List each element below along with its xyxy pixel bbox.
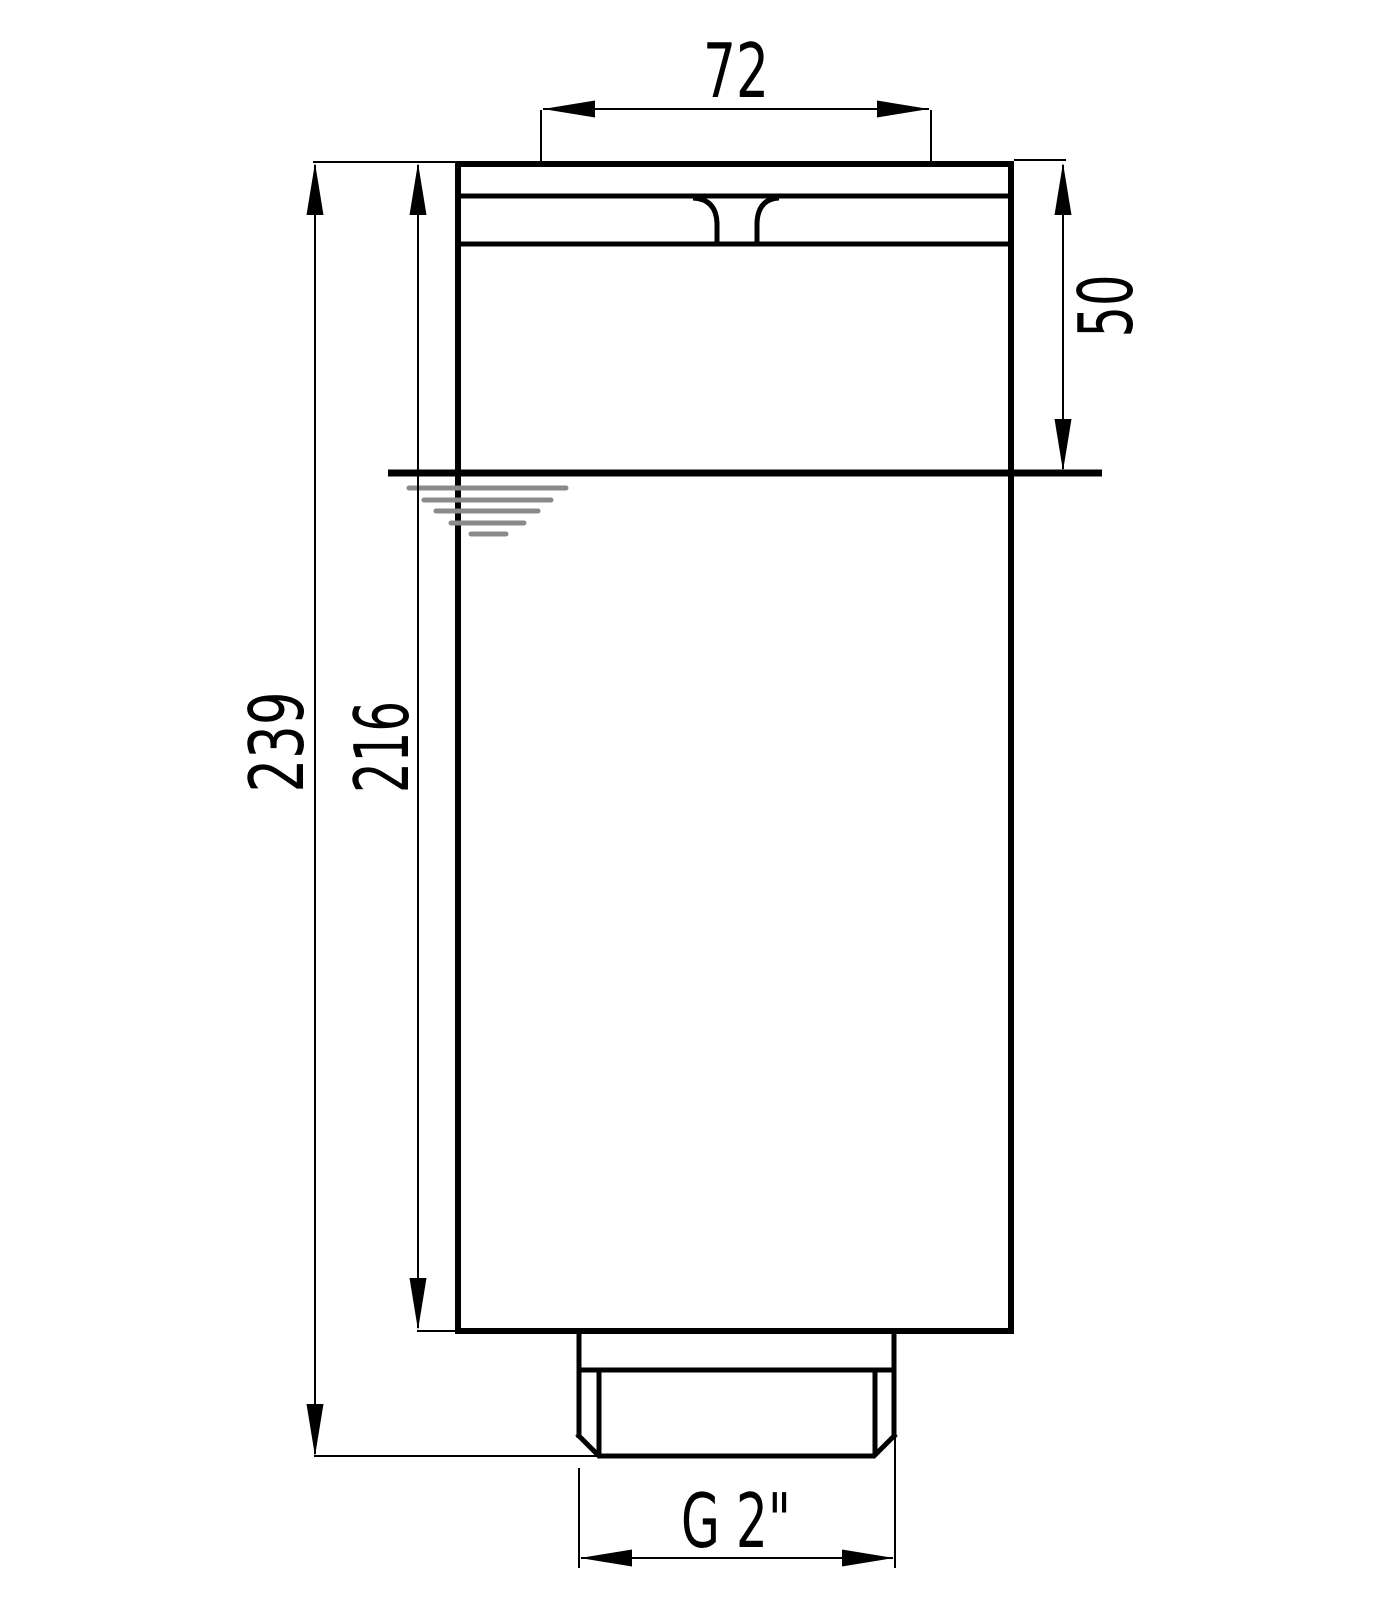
dimG2-arrow-right [842,1550,894,1567]
dim-label-body-height: 216 [338,701,426,793]
dim216-arrow-bottom [410,1278,427,1330]
dim-label-thread-size: G 2" [681,1477,791,1565]
water-level-symbol [409,488,566,534]
dimension-arrows [307,101,1072,1567]
dim-label-top-width: 72 [703,27,769,115]
dim-label-cap-depth: 50 [1062,275,1150,338]
drawing-sheet: 72 239 216 50 G 2" [0,0,1390,1600]
funnel-right-curve [757,198,779,246]
dim239-arrow-bottom [307,1404,324,1456]
object-lines [388,164,1102,1457]
dim50-arrow-top [1055,163,1072,215]
dim216-arrow-top [410,163,427,215]
dim72-arrow-left [543,101,595,118]
funnel-left-curve [693,198,717,246]
vessel-body-outline [458,164,1011,1331]
dim-label-overall-height: 239 [233,692,321,793]
dim72-arrow-right [877,101,929,118]
dim239-arrow-top [307,163,324,215]
dimG2-arrow-left [580,1550,632,1567]
dimension-lines [313,109,1066,1568]
dim50-arrow-bottom [1055,419,1072,471]
technical-drawing-canvas: 72 239 216 50 G 2" [0,0,1390,1600]
